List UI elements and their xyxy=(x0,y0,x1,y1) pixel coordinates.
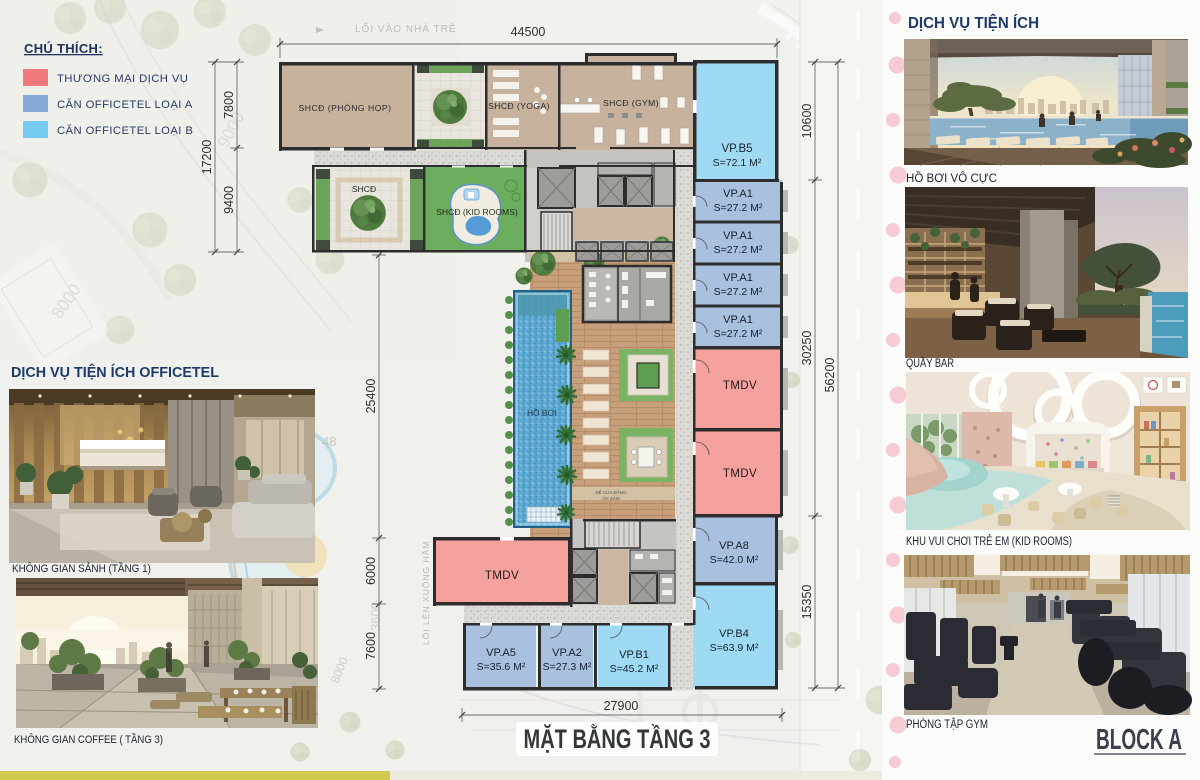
svg-text:KHU VUI CHƠI TRẺ EM (KID ROOMS: KHU VUI CHƠI TRẺ EM (KID ROOMS) xyxy=(906,535,1072,548)
svg-text:17200: 17200 xyxy=(200,140,214,175)
svg-text:SHCĐ (PHÒNG HỌP): SHCĐ (PHÒNG HỌP) xyxy=(299,103,392,113)
svg-text:30250: 30250 xyxy=(800,331,814,366)
svg-text:TMDV: TMDV xyxy=(723,468,757,480)
svg-text:VP.A2: VP.A2 xyxy=(552,647,582,659)
svg-text:KHÔNG GIAN SẢNH (TẦNG 1): KHÔNG GIAN SẢNH (TẦNG 1) xyxy=(12,562,151,575)
svg-text:SHCĐ: SHCĐ xyxy=(352,184,376,194)
svg-text:DỊCH VỤ TIỆN ÍCH OFFICETEL: DỊCH VỤ TIỆN ÍCH OFFICETEL xyxy=(11,363,219,381)
svg-text:ĐỂ CỦA ĐẰNG: ĐỂ CỦA ĐẰNG xyxy=(595,488,627,495)
svg-text:VP.A1: VP.A1 xyxy=(723,230,753,242)
svg-text:27900: 27900 xyxy=(604,699,639,713)
svg-text:BLOCK A: BLOCK A xyxy=(1096,724,1182,756)
svg-text:DỊCH VỤ TIỆN ÍCH: DỊCH VỤ TIỆN ÍCH xyxy=(908,14,1039,32)
svg-text:VP.A1: VP.A1 xyxy=(723,314,753,326)
svg-text:9400: 9400 xyxy=(222,186,236,214)
svg-text:7600: 7600 xyxy=(364,632,378,660)
svg-text:44500: 44500 xyxy=(511,25,546,39)
svg-text:VP.A8: VP.A8 xyxy=(719,540,749,552)
svg-text:S=27.2 M²: S=27.2 M² xyxy=(714,286,763,298)
svg-text:VP.B5: VP.B5 xyxy=(721,143,752,155)
svg-text:S=27.2 M²: S=27.2 M² xyxy=(714,244,763,256)
svg-text:HỒ BƠI: HỒ BƠI xyxy=(527,407,557,418)
svg-text:VP.B4: VP.B4 xyxy=(719,628,749,640)
svg-text:SHCĐ (YOGA): SHCĐ (YOGA) xyxy=(488,101,550,111)
svg-text:VP.B1: VP.B1 xyxy=(619,649,649,661)
svg-text:MẶT BẰNG TẦNG 3: MẶT BẰNG TẦNG 3 xyxy=(524,723,711,754)
svg-text:S=35.6 M²: S=35.6 M² xyxy=(477,661,526,673)
svg-text:KHÔNG GIAN COFFEE ( TẦNG 3): KHÔNG GIAN COFFEE ( TẦNG 3) xyxy=(14,733,163,746)
svg-text:CHÚ THÍCH:: CHÚ THÍCH: xyxy=(24,41,103,56)
svg-text:TMDV: TMDV xyxy=(723,380,757,392)
svg-text:48: 48 xyxy=(322,434,336,449)
svg-text:LỐI VÀO NHÀ TRẺ: LỐI VÀO NHÀ TRẺ xyxy=(355,21,457,35)
svg-text:ĂN SẢM: ĂN SẢM xyxy=(602,495,620,501)
svg-text:15350: 15350 xyxy=(800,585,814,620)
svg-text:S=27.3 M²: S=27.3 M² xyxy=(543,661,592,673)
svg-text:PHÒNG TẬP GYM: PHÒNG TẬP GYM xyxy=(906,718,988,731)
svg-text:VP.A5: VP.A5 xyxy=(486,647,516,659)
svg-text:CĂN OFFICETEL LOẠI B: CĂN OFFICETEL LOẠI B xyxy=(57,124,193,137)
svg-text:SHCĐ (GYM): SHCĐ (GYM) xyxy=(603,98,659,108)
svg-text:QUẦY BAR: QUẦY BAR xyxy=(906,357,954,370)
svg-text:HỒ BƠI VÔ CỰC: HỒ BƠI VÔ CỰC xyxy=(906,172,997,185)
svg-text:VP.A1: VP.A1 xyxy=(723,272,753,284)
svg-text:CĂN OFFICETEL LOẠI A: CĂN OFFICETEL LOẠI A xyxy=(57,98,193,111)
svg-text:S=42.0 M²: S=42.0 M² xyxy=(710,554,759,566)
svg-text:SHCĐ (KID ROOMS): SHCĐ (KID ROOMS) xyxy=(436,207,518,217)
svg-text:7800: 7800 xyxy=(222,91,236,119)
svg-text:S=27.2 M²: S=27.2 M² xyxy=(714,328,763,340)
svg-text:10600: 10600 xyxy=(800,104,814,139)
svg-text:LỐI LÊN XUỐNG HẦM: LỐI LÊN XUỐNG HẦM xyxy=(420,541,431,645)
svg-text:3600: 3600 xyxy=(368,602,383,631)
svg-text:VP.A1: VP.A1 xyxy=(723,188,753,200)
svg-text:THƯƠNG MẠI DỊCH VỤ: THƯƠNG MẠI DỊCH VỤ xyxy=(57,73,188,85)
svg-text:6000: 6000 xyxy=(364,557,378,585)
svg-text:TMDV: TMDV xyxy=(485,570,519,582)
svg-text:S=27.2 M²: S=27.2 M² xyxy=(714,202,763,214)
svg-text:56200: 56200 xyxy=(823,358,837,393)
svg-text:S=72.1 M²: S=72.1 M² xyxy=(713,157,762,169)
svg-text:S=45.2 M²: S=45.2 M² xyxy=(610,663,659,675)
svg-text:S=63.9 M²: S=63.9 M² xyxy=(710,642,759,654)
svg-text:25400: 25400 xyxy=(364,379,378,414)
